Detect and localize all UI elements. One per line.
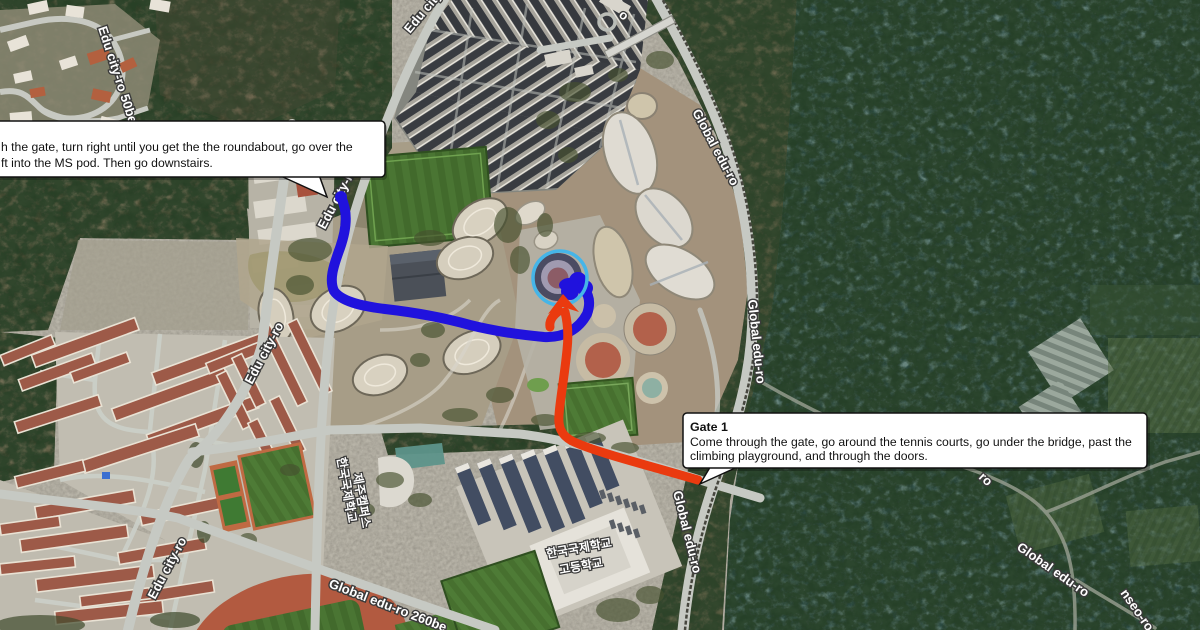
svg-text:ft into the MS pod. Then go do: ft into the MS pod. Then go downstairs. — [1, 156, 213, 170]
svg-text:climbing playground, and throu: climbing playground, and through the doo… — [690, 449, 928, 463]
svg-text:Gate 1: Gate 1 — [690, 420, 728, 434]
svg-text:h the gate, turn right until y: h the gate, turn right until you get the… — [1, 140, 353, 154]
svg-text:Come through the gate, go arou: Come through the gate, go around the ten… — [690, 435, 1132, 449]
